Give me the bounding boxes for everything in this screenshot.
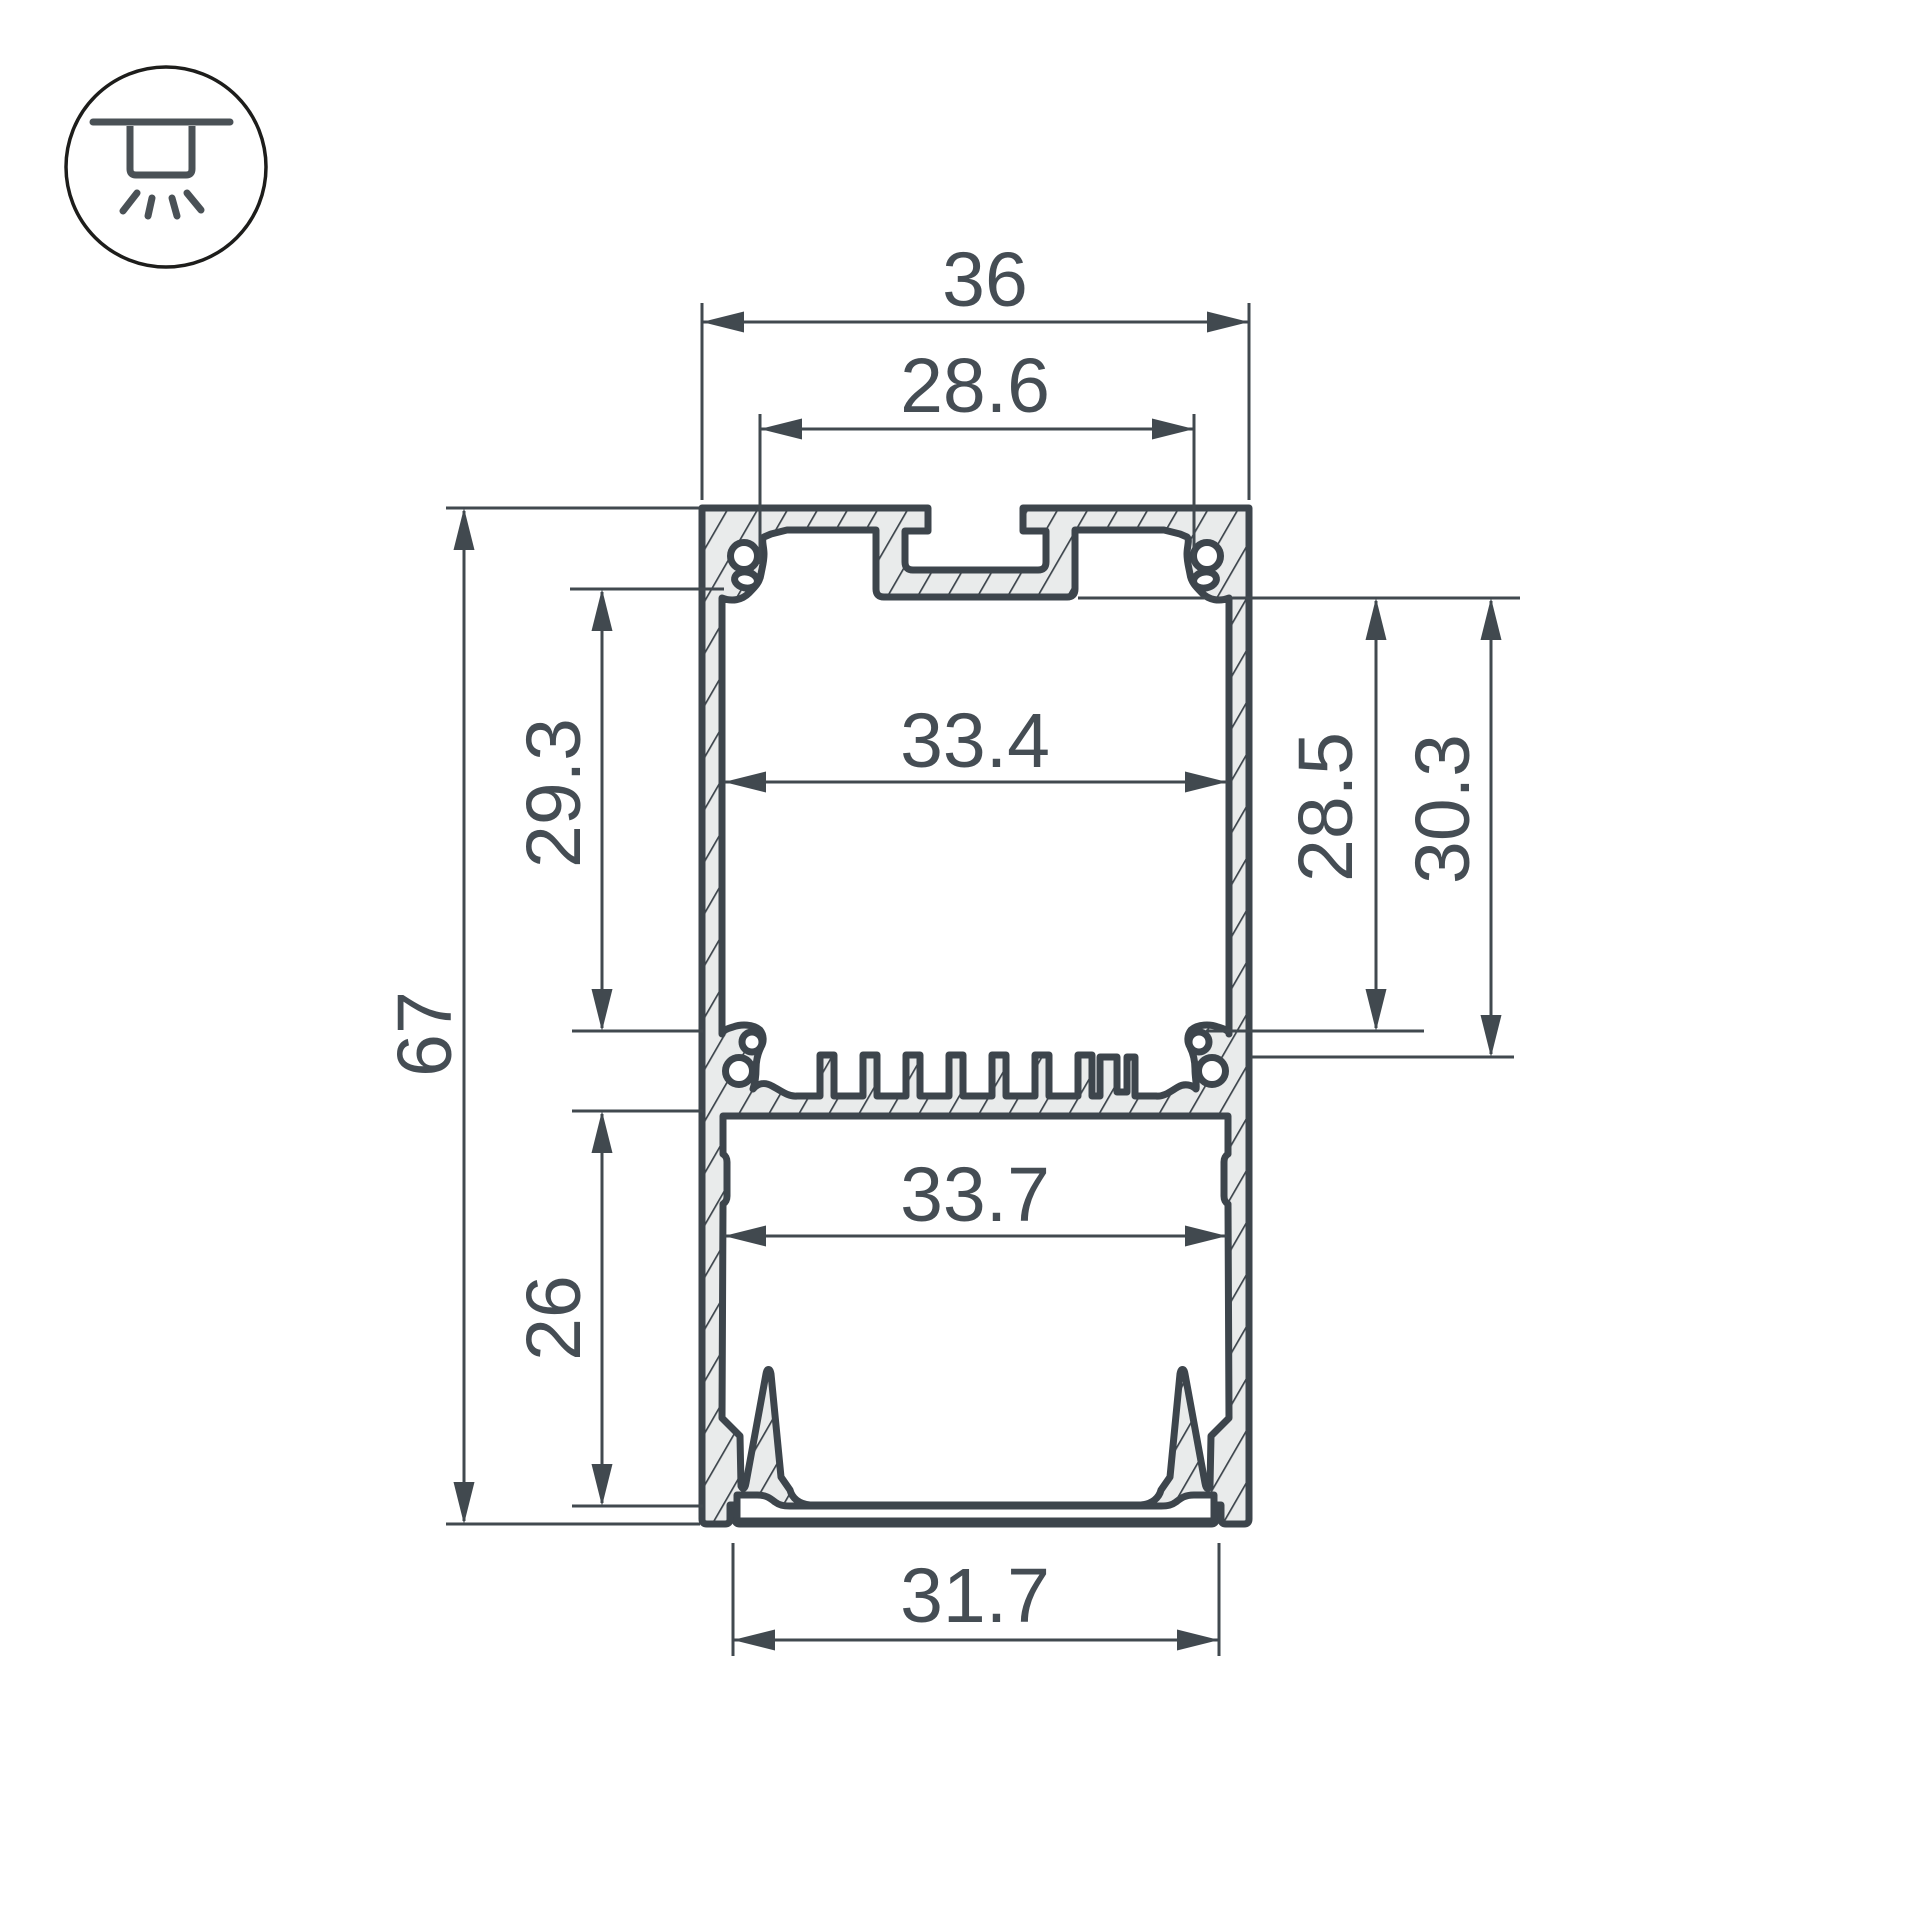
svg-text:29.3: 29.3: [511, 718, 597, 868]
svg-text:36: 36: [942, 237, 1028, 323]
svg-text:33.7: 33.7: [900, 1152, 1050, 1238]
svg-text:30.3: 30.3: [1400, 734, 1486, 884]
svg-text:26: 26: [511, 1275, 597, 1361]
svg-text:67: 67: [382, 991, 468, 1077]
svg-text:28.6: 28.6: [900, 343, 1050, 429]
svg-text:33.4: 33.4: [900, 698, 1050, 784]
svg-text:31.7: 31.7: [900, 1553, 1050, 1639]
svg-text:28.5: 28.5: [1283, 732, 1369, 882]
